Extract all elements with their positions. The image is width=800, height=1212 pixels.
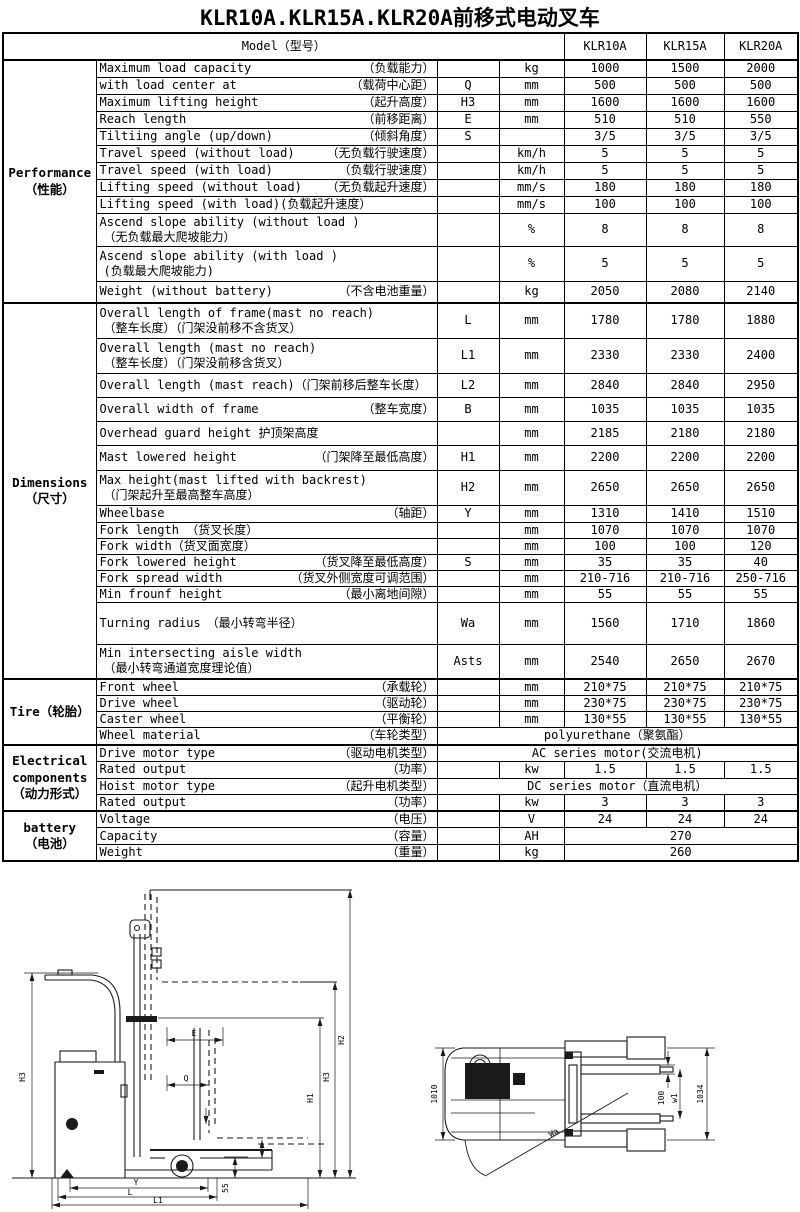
- spec-value: 2540: [564, 644, 646, 679]
- spec-row: Drive wheel（驱动轮）mm230*75230*75230*75: [3, 696, 798, 712]
- spec-unit: mm/s: [499, 179, 564, 196]
- spec-symbol: [437, 712, 499, 728]
- spec-label: Max height(mast lifted with backrest)（门架…: [96, 470, 437, 505]
- spec-row: Fork lowered height（货叉降至最低高度）Smm353540: [3, 554, 798, 570]
- spec-label: Lifting speed (without load)（无负载起升速度）: [96, 179, 437, 196]
- spec-symbol: [437, 679, 499, 696]
- spec-value: 120: [724, 538, 798, 554]
- spec-label: Turning radius （最小转弯半径）: [96, 602, 437, 644]
- spec-value: 100: [564, 196, 646, 213]
- spec-label: Min intersecting aisle width（最小转弯通道宽度理论值…: [96, 644, 437, 679]
- spec-row: Mast lowered height（门架降至最低高度）H1mm2200220…: [3, 445, 798, 470]
- top-view-drawing: Wa 1010 100 w1 1034: [415, 995, 790, 1212]
- spec-unit: [499, 128, 564, 145]
- spec-value: 180: [646, 179, 724, 196]
- spec-symbol: [437, 794, 499, 811]
- spec-value: 2650: [646, 470, 724, 505]
- spec-symbol: L2: [437, 373, 499, 397]
- spec-row: Weight（重量）kg260: [3, 845, 798, 862]
- spec-symbol: [437, 696, 499, 712]
- spec-label: Overall length (mast reach)（门架前移后整车长度）: [96, 373, 437, 397]
- spec-value: 5: [646, 162, 724, 179]
- spec-unit: mm: [499, 445, 564, 470]
- spec-unit: kw: [499, 794, 564, 811]
- model-klr15a: KLR15A: [646, 33, 724, 60]
- spec-value: 35: [564, 554, 646, 570]
- spec-value: 510: [646, 111, 724, 128]
- spec-symbol: [437, 179, 499, 196]
- spec-value: 1310: [564, 505, 646, 522]
- svg-text:E: E: [192, 1029, 197, 1038]
- spec-value: 55: [724, 586, 798, 602]
- spec-symbol: [437, 213, 499, 246]
- spec-merged-value: 270: [564, 828, 798, 845]
- spec-label: Rated output（功率）: [96, 794, 437, 811]
- spec-label: Travel speed (without load)（无负载行驶速度）: [96, 145, 437, 162]
- spec-sheet-page: KLR10A.KLR15A.KLR20A前移式电动叉车 Model（型号） KL…: [0, 0, 800, 1212]
- spec-value: 1600: [646, 94, 724, 111]
- spec-value: 24: [724, 811, 798, 828]
- spec-symbol: [437, 811, 499, 828]
- spec-label: Fork length （货叉长度）: [96, 522, 437, 538]
- page-title: KLR10A.KLR15A.KLR20A前移式电动叉车: [0, 0, 800, 32]
- spec-symbol: [437, 60, 499, 77]
- spec-symbol: H1: [437, 445, 499, 470]
- spec-value: 180: [724, 179, 798, 196]
- spec-value: 5: [564, 162, 646, 179]
- spec-unit: V: [499, 811, 564, 828]
- spec-value: 230*75: [724, 696, 798, 712]
- svg-text:w1: w1: [670, 1093, 679, 1103]
- spec-unit: AH: [499, 828, 564, 845]
- spec-value: 210-716: [646, 570, 724, 586]
- spec-unit: km/h: [499, 145, 564, 162]
- spec-label: Lifting speed (with load)(负载起升速度）: [96, 196, 437, 213]
- spec-value: 1600: [564, 94, 646, 111]
- spec-value: 40: [724, 554, 798, 570]
- spec-unit: %: [499, 246, 564, 281]
- spec-value: 1.5: [564, 761, 646, 778]
- spec-table: Model（型号） KLR10A KLR15A KLR20A Performan…: [2, 32, 799, 862]
- spec-value: 1710: [646, 602, 724, 644]
- spec-value: 2650: [646, 644, 724, 679]
- spec-symbol: S: [437, 128, 499, 145]
- spec-label: Drive wheel（驱动轮）: [96, 696, 437, 712]
- table-header-row: Model（型号） KLR10A KLR15A KLR20A: [3, 33, 798, 60]
- spec-row: Rated output（功率）kw1.51.51.5: [3, 761, 798, 778]
- spec-unit: mm: [499, 111, 564, 128]
- spec-symbol: H2: [437, 470, 499, 505]
- spec-value: 3/5: [724, 128, 798, 145]
- spec-value: 2330: [564, 338, 646, 373]
- spec-value: 1780: [646, 303, 724, 338]
- spec-value: 1600: [724, 94, 798, 111]
- spec-row: Travel speed (with load)（负载行驶速度）km/h555: [3, 162, 798, 179]
- spec-unit: %: [499, 213, 564, 246]
- svg-text:1010: 1010: [430, 1084, 439, 1103]
- side-view-drawing: H3 E Q H1 H3 H2: [8, 872, 358, 1212]
- spec-row: Maximum lifting height（起升高度）H3mm16001600…: [3, 94, 798, 111]
- spec-value: 130*55: [646, 712, 724, 728]
- spec-value: 2050: [564, 281, 646, 303]
- spec-row: Fork width（货叉面宽度）mm100100120: [3, 538, 798, 554]
- spec-value: 35: [646, 554, 724, 570]
- spec-symbol: S: [437, 554, 499, 570]
- spec-merged-value: AC series motor(交流电机): [437, 745, 798, 762]
- spec-value: 5: [724, 162, 798, 179]
- spec-value: 1035: [724, 397, 798, 421]
- spec-value: 1.5: [646, 761, 724, 778]
- spec-row: Dimensions（尺寸）Overall length of frame(ma…: [3, 303, 798, 338]
- spec-merged-value: DC series motor（直流电机）: [437, 778, 798, 794]
- spec-row: Hoist motor type（起升电机类型）DC series motor（…: [3, 778, 798, 794]
- spec-value: 2650: [724, 470, 798, 505]
- spec-unit: mm: [499, 470, 564, 505]
- spec-unit: mm: [499, 644, 564, 679]
- spec-value: 2650: [564, 470, 646, 505]
- spec-row: Min intersecting aisle width（最小转弯通道宽度理论值…: [3, 644, 798, 679]
- spec-row: Lifting speed (without load)（无负载起升速度）mm/…: [3, 179, 798, 196]
- spec-label: Weight (without battery)（不含电池重量）: [96, 281, 437, 303]
- spec-label: Ascend slope ability (without load )（无负载…: [96, 213, 437, 246]
- spec-label: Wheel material（车轮类型）: [96, 728, 437, 745]
- spec-value: 2180: [724, 421, 798, 445]
- spec-value: 2840: [564, 373, 646, 397]
- spec-row: Max height(mast lifted with backrest)（门架…: [3, 470, 798, 505]
- spec-label: with load center at（载荷中心距）: [96, 77, 437, 94]
- spec-label: Wheelbase（轴距）: [96, 505, 437, 522]
- spec-value: 1070: [646, 522, 724, 538]
- spec-unit: mm: [499, 522, 564, 538]
- spec-value: 2400: [724, 338, 798, 373]
- spec-value: 8: [646, 213, 724, 246]
- spec-label: Caster wheel（平衡轮）: [96, 712, 437, 728]
- spec-merged-value: polyurethane（聚氨酯）: [437, 728, 798, 745]
- spec-unit: kw: [499, 761, 564, 778]
- spec-label: Hoist motor type（起升电机类型）: [96, 778, 437, 794]
- spec-symbol: [437, 162, 499, 179]
- spec-value: 8: [564, 213, 646, 246]
- spec-value: 2200: [646, 445, 724, 470]
- section-label: Dimensions（尺寸）: [3, 303, 96, 679]
- spec-row: Caster wheel（平衡轮）mm130*55130*55130*55: [3, 712, 798, 728]
- spec-value: 510: [564, 111, 646, 128]
- spec-unit: mm: [499, 397, 564, 421]
- spec-value: 1510: [724, 505, 798, 522]
- spec-value: 3/5: [646, 128, 724, 145]
- spec-label: Fork lowered height（货叉降至最低高度）: [96, 554, 437, 570]
- spec-symbol: E: [437, 111, 499, 128]
- spec-label: Mast lowered height（门架降至最低高度）: [96, 445, 437, 470]
- spec-unit: mm: [499, 94, 564, 111]
- spec-symbol: [437, 538, 499, 554]
- spec-value: 1035: [646, 397, 724, 421]
- spec-value: 3: [564, 794, 646, 811]
- spec-value: 2080: [646, 281, 724, 303]
- spec-row: Travel speed (without load)（无负载行驶速度）km/h…: [3, 145, 798, 162]
- spec-row: Overhead guard height 护顶架高度mm21852180218…: [3, 421, 798, 445]
- model-header: Model（型号）: [3, 33, 564, 60]
- spec-symbol: [437, 845, 499, 862]
- spec-unit: mm: [499, 586, 564, 602]
- spec-value: 500: [724, 77, 798, 94]
- spec-value: 250-716: [724, 570, 798, 586]
- spec-value: 100: [646, 538, 724, 554]
- spec-row: Min frounf height（最小离地间隙）mm555555: [3, 586, 798, 602]
- spec-unit: mm: [499, 570, 564, 586]
- spec-value: 1.5: [724, 761, 798, 778]
- spec-row: Electricalcomponents（动力形式）Drive motor ty…: [3, 745, 798, 762]
- spec-value: 1780: [564, 303, 646, 338]
- svg-text:55: 55: [221, 1183, 230, 1193]
- spec-symbol: [437, 246, 499, 281]
- spec-value: 5: [564, 145, 646, 162]
- spec-value: 210-716: [564, 570, 646, 586]
- spec-label: Overhead guard height 护顶架高度: [96, 421, 437, 445]
- svg-text:1034: 1034: [696, 1084, 705, 1103]
- spec-row: Overall length (mast reach)（门架前移后整车长度）L2…: [3, 373, 798, 397]
- spec-value: 3/5: [564, 128, 646, 145]
- spec-value: 24: [646, 811, 724, 828]
- spec-value: 24: [564, 811, 646, 828]
- spec-symbol: [437, 828, 499, 845]
- spec-unit: kg: [499, 60, 564, 77]
- spec-unit: mm: [499, 538, 564, 554]
- spec-value: 1000: [564, 60, 646, 77]
- svg-text:Q: Q: [184, 1074, 189, 1083]
- spec-unit: mm: [499, 421, 564, 445]
- spec-unit: mm: [499, 505, 564, 522]
- spec-value: 1500: [646, 60, 724, 77]
- spec-value: 130*55: [564, 712, 646, 728]
- spec-symbol: L1: [437, 338, 499, 373]
- spec-row: Wheelbase（轴距）Ymm131014101510: [3, 505, 798, 522]
- spec-label: Voltage（电压）: [96, 811, 437, 828]
- spec-value: 130*55: [724, 712, 798, 728]
- spec-unit: mm: [499, 554, 564, 570]
- spec-row: Tiltiing angle (up/down)（倾斜角度）S3/53/53/5: [3, 128, 798, 145]
- svg-text:L1: L1: [153, 1196, 163, 1205]
- model-klr10a: KLR10A: [564, 33, 646, 60]
- spec-row: Ascend slope ability (without load )（无负载…: [3, 213, 798, 246]
- svg-text:Wa: Wa: [547, 1126, 560, 1139]
- section-label: Performance（性能）: [3, 60, 96, 303]
- spec-unit: mm: [499, 696, 564, 712]
- spec-symbol: Q: [437, 77, 499, 94]
- spec-row: with load center at（载荷中心距）Qmm500500500: [3, 77, 798, 94]
- spec-row: Fork length （货叉长度）mm107010701070: [3, 522, 798, 538]
- spec-value: 2200: [564, 445, 646, 470]
- spec-symbol: [437, 145, 499, 162]
- spec-value: 2950: [724, 373, 798, 397]
- spec-value: 1410: [646, 505, 724, 522]
- spec-value: 5: [646, 246, 724, 281]
- spec-row: Tire（轮胎）Front wheel（承载轮）mm210*75210*7521…: [3, 679, 798, 696]
- spec-symbol: L: [437, 303, 499, 338]
- spec-unit: kg: [499, 845, 564, 862]
- spec-unit: mm: [499, 303, 564, 338]
- spec-row: Wheel material（车轮类型）polyurethane（聚氨酯）: [3, 728, 798, 745]
- spec-label: Overall width of frame（整车宽度）: [96, 397, 437, 421]
- spec-value: 55: [646, 586, 724, 602]
- spec-symbol: Asts: [437, 644, 499, 679]
- spec-label: Overall length (mast no reach)（整车长度）（门架没…: [96, 338, 437, 373]
- svg-text:Y: Y: [134, 1178, 139, 1187]
- spec-value: 500: [564, 77, 646, 94]
- model-klr20a: KLR20A: [724, 33, 798, 60]
- spec-value: 500: [646, 77, 724, 94]
- spec-value: 2200: [724, 445, 798, 470]
- spec-symbol: H3: [437, 94, 499, 111]
- spec-value: 1560: [564, 602, 646, 644]
- spec-symbol: Y: [437, 505, 499, 522]
- spec-value: 2140: [724, 281, 798, 303]
- svg-text:L: L: [128, 1188, 133, 1197]
- spec-unit: mm: [499, 602, 564, 644]
- svg-text:100: 100: [657, 1091, 666, 1106]
- spec-row: Rated output（功率）kw333: [3, 794, 798, 811]
- spec-label: Capacity（容量）: [96, 828, 437, 845]
- spec-row: Reach length（前移距离）Emm510510550: [3, 111, 798, 128]
- spec-label: Fork spread width（货叉外侧宽度可调范围）: [96, 570, 437, 586]
- spec-label: Fork width（货叉面宽度）: [96, 538, 437, 554]
- spec-unit: mm: [499, 679, 564, 696]
- spec-label: Overall length of frame(mast no reach)（整…: [96, 303, 437, 338]
- spec-row: Overall width of frame（整车宽度）Bmm103510351…: [3, 397, 798, 421]
- spec-value: 1880: [724, 303, 798, 338]
- spec-symbol: [437, 196, 499, 213]
- spec-symbol: [437, 586, 499, 602]
- spec-value: 5: [646, 145, 724, 162]
- svg-text:H2: H2: [337, 1035, 346, 1045]
- spec-value: 100: [564, 538, 646, 554]
- spec-value: 3: [724, 794, 798, 811]
- spec-value: 230*75: [564, 696, 646, 712]
- spec-unit: mm: [499, 712, 564, 728]
- spec-unit: mm/s: [499, 196, 564, 213]
- spec-value: 100: [724, 196, 798, 213]
- spec-value: 2180: [646, 421, 724, 445]
- spec-label: Front wheel（承载轮）: [96, 679, 437, 696]
- spec-unit: km/h: [499, 162, 564, 179]
- spec-label: Travel speed (with load)（负载行驶速度）: [96, 162, 437, 179]
- spec-label: Drive motor type（驱动电机类型）: [96, 745, 437, 762]
- spec-label: Rated output（功率）: [96, 761, 437, 778]
- spec-row: battery（电池）Voltage（电压）V242424: [3, 811, 798, 828]
- spec-value: 210*75: [646, 679, 724, 696]
- spec-label: Reach length（前移距离）: [96, 111, 437, 128]
- section-label: Electricalcomponents（动力形式）: [3, 745, 96, 812]
- spec-value: 2000: [724, 60, 798, 77]
- spec-value: 2670: [724, 644, 798, 679]
- spec-value: 8: [724, 213, 798, 246]
- svg-text:H3: H3: [322, 1072, 331, 1082]
- spec-symbol: Wa: [437, 602, 499, 644]
- spec-symbol: [437, 421, 499, 445]
- spec-row: Turning radius （最小转弯半径）Wamm156017101860: [3, 602, 798, 644]
- spec-row: Overall length (mast no reach)（整车长度）（门架没…: [3, 338, 798, 373]
- spec-unit: mm: [499, 373, 564, 397]
- spec-row: Performance（性能）Maximum load capacity（负载能…: [3, 60, 798, 77]
- spec-merged-value: 260: [564, 845, 798, 862]
- spec-value: 180: [564, 179, 646, 196]
- spec-label: Ascend slope ability (with load )(负载最大爬坡…: [96, 246, 437, 281]
- spec-label: Min frounf height（最小离地间隙）: [96, 586, 437, 602]
- spec-label: Maximum load capacity（负载能力）: [96, 60, 437, 77]
- spec-value: 2185: [564, 421, 646, 445]
- spec-value: 55: [564, 586, 646, 602]
- spec-value: 100: [646, 196, 724, 213]
- svg-text:H3: H3: [18, 1072, 27, 1082]
- spec-unit: mm: [499, 338, 564, 373]
- spec-value: 3: [646, 794, 724, 811]
- spec-value: 550: [724, 111, 798, 128]
- spec-label: Maximum lifting height（起升高度）: [96, 94, 437, 111]
- spec-row: Weight (without battery)（不含电池重量）kg205020…: [3, 281, 798, 303]
- spec-value: 2330: [646, 338, 724, 373]
- spec-row: Capacity（容量）AH270: [3, 828, 798, 845]
- spec-symbol: B: [437, 397, 499, 421]
- spec-label: Weight（重量）: [96, 845, 437, 862]
- spec-value: 2840: [646, 373, 724, 397]
- spec-value: 5: [724, 145, 798, 162]
- spec-unit: mm: [499, 77, 564, 94]
- spec-value: 210*75: [564, 679, 646, 696]
- spec-value: 1035: [564, 397, 646, 421]
- spec-symbol: [437, 522, 499, 538]
- spec-value: 1860: [724, 602, 798, 644]
- spec-symbol: [437, 761, 499, 778]
- section-label: battery（电池）: [3, 811, 96, 861]
- spec-row: Fork spread width（货叉外侧宽度可调范围）mm210-71621…: [3, 570, 798, 586]
- spec-value: 5: [724, 246, 798, 281]
- spec-value: 1070: [564, 522, 646, 538]
- spec-row: Ascend slope ability (with load )(负载最大爬坡…: [3, 246, 798, 281]
- spec-value: 230*75: [646, 696, 724, 712]
- section-label: Tire（轮胎）: [3, 679, 96, 745]
- spec-symbol: [437, 281, 499, 303]
- spec-row: Lifting speed (with load)(负载起升速度）mm/s100…: [3, 196, 798, 213]
- spec-unit: kg: [499, 281, 564, 303]
- spec-value: 210*75: [724, 679, 798, 696]
- svg-text:H1: H1: [306, 1093, 315, 1103]
- spec-label: Tiltiing angle (up/down)（倾斜角度）: [96, 128, 437, 145]
- spec-value: 1070: [724, 522, 798, 538]
- spec-value: 5: [564, 246, 646, 281]
- spec-symbol: [437, 570, 499, 586]
